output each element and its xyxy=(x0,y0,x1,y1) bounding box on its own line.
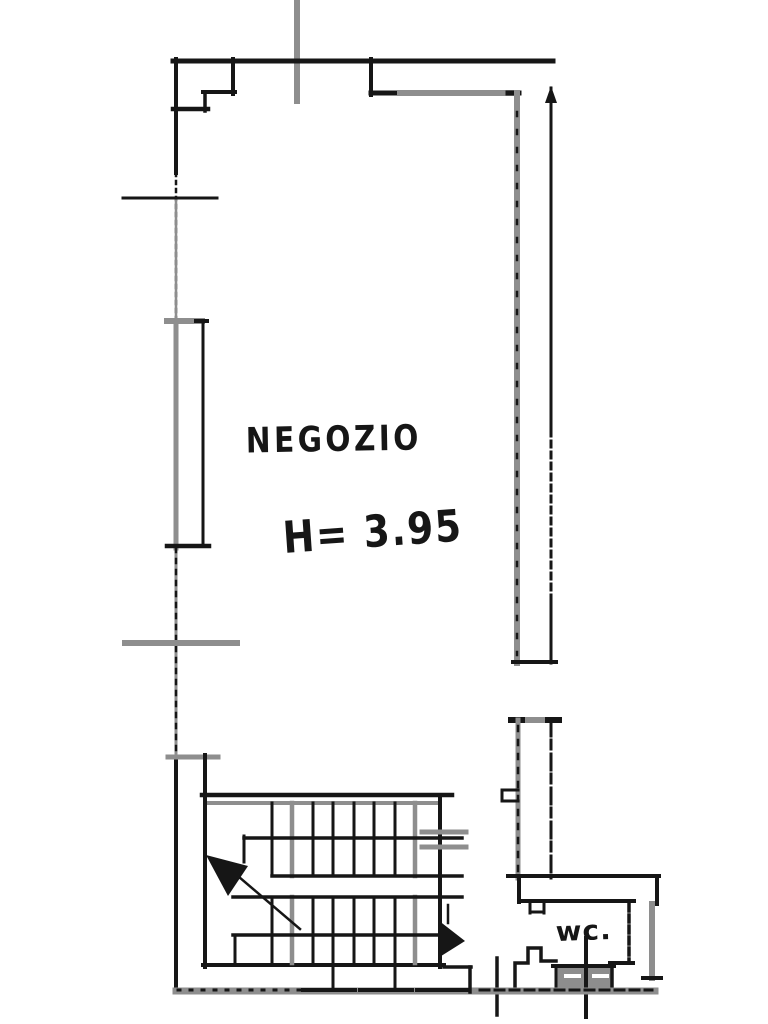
height-annotation: H= 3.95 xyxy=(281,501,464,564)
floorplan-page: NEGOZIO H= 3.95 wc. xyxy=(0,0,768,1024)
wc-label: wc. xyxy=(555,915,612,948)
room-label: NEGOZIO xyxy=(245,418,422,461)
stair-down-arrowhead xyxy=(206,855,248,896)
right-wall-arrowhead xyxy=(545,86,557,103)
stair-exit-arrowhead xyxy=(438,920,465,958)
wc-pedestal-outline xyxy=(515,948,556,992)
floorplan-drawing: NEGOZIO H= 3.95 wc. xyxy=(0,0,768,1024)
